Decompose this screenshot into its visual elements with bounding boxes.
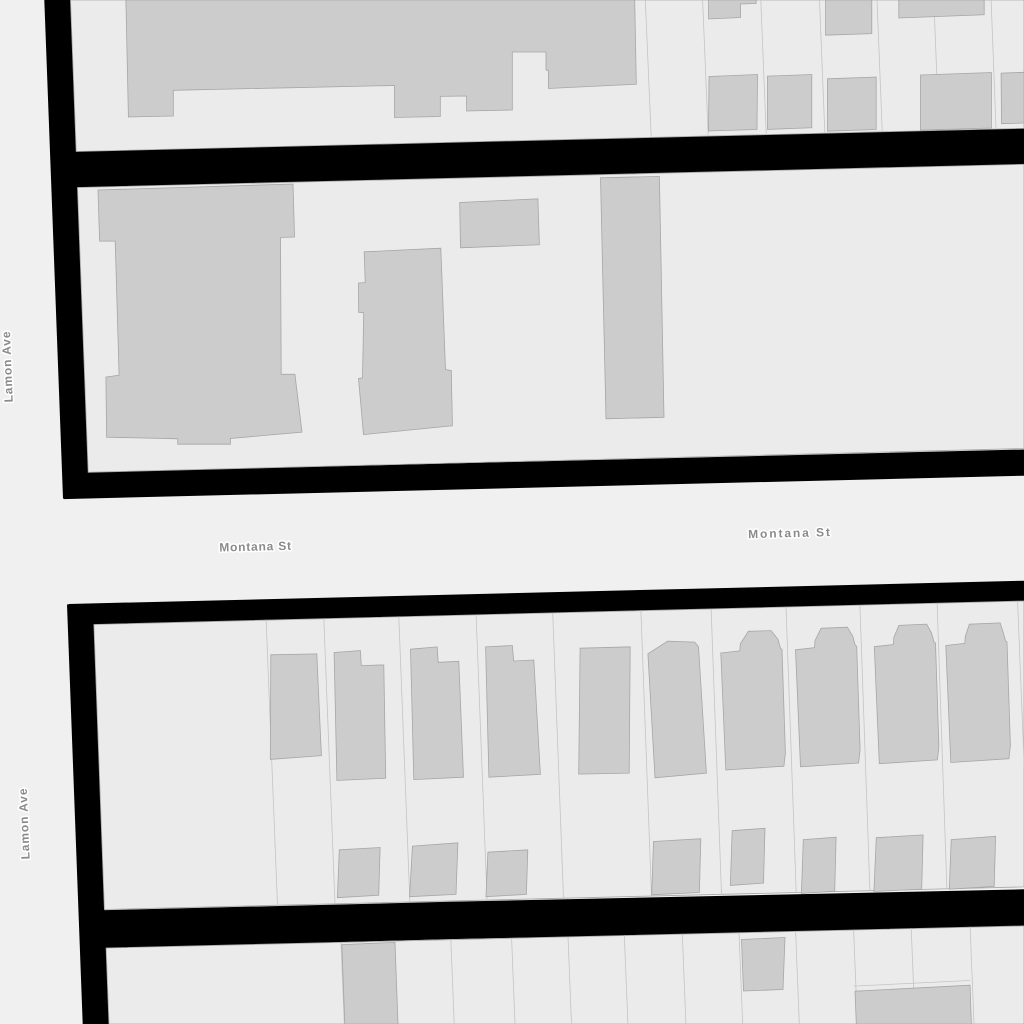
- svg-text:Lamon Ave: Lamon Ave: [16, 787, 33, 859]
- svg-text:Montana St: Montana St: [748, 525, 832, 541]
- svg-text:Montana St: Montana St: [219, 539, 292, 555]
